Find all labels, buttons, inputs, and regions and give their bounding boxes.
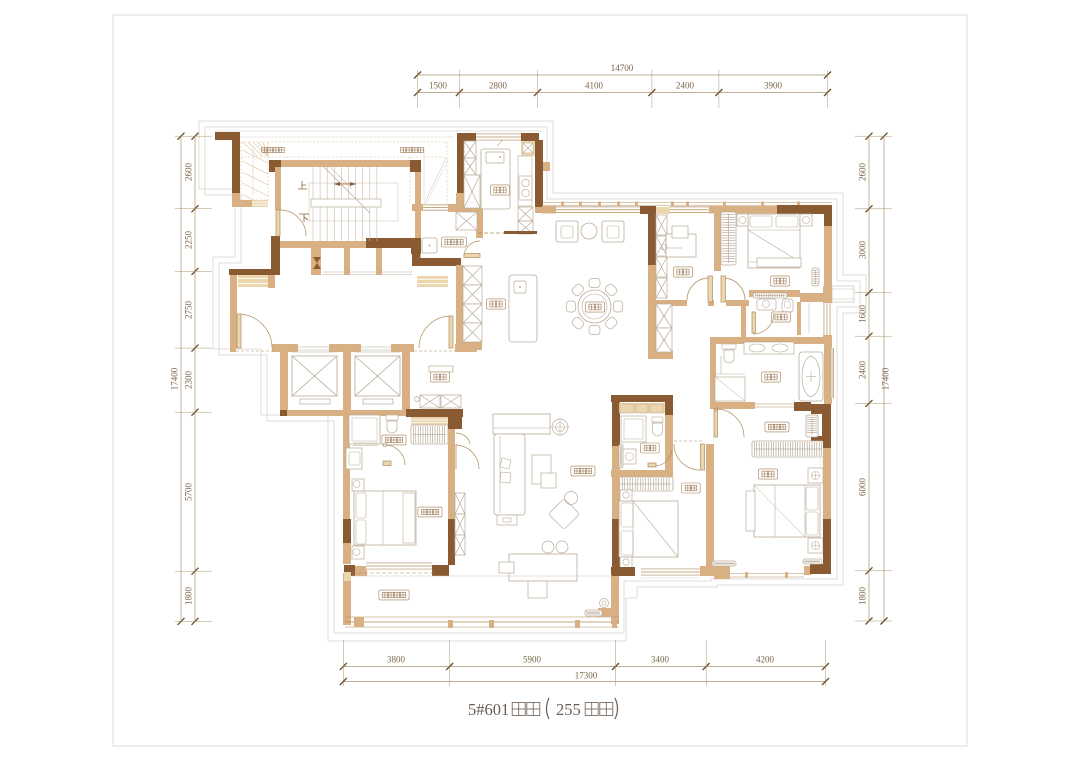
svg-text:255: 255 <box>556 700 581 719</box>
svg-text:5700: 5700 <box>184 483 194 502</box>
svg-text:17300: 17300 <box>575 671 598 681</box>
svg-text:3400: 3400 <box>651 655 670 665</box>
svg-text:17400: 17400 <box>170 367 180 390</box>
svg-text:5900: 5900 <box>523 655 542 665</box>
svg-text:4100: 4100 <box>585 81 604 91</box>
svg-text:4200: 4200 <box>756 655 775 665</box>
svg-text:2800: 2800 <box>489 81 508 91</box>
svg-text:2250: 2250 <box>184 231 194 250</box>
svg-text:2400: 2400 <box>858 361 868 380</box>
svg-text:3000: 3000 <box>858 241 868 260</box>
svg-text:2600: 2600 <box>858 163 868 182</box>
svg-text:2300: 2300 <box>184 371 194 390</box>
svg-text:3900: 3900 <box>764 81 783 91</box>
svg-text:1600: 1600 <box>858 305 868 324</box>
svg-text:1800: 1800 <box>184 587 194 606</box>
svg-text:1800: 1800 <box>858 587 868 606</box>
svg-text:2750: 2750 <box>184 301 194 320</box>
svg-text:5#601: 5#601 <box>468 700 509 719</box>
svg-text:1500: 1500 <box>429 81 448 91</box>
svg-text:2400: 2400 <box>676 81 695 91</box>
svg-text:14700: 14700 <box>611 63 634 73</box>
svg-text:17400: 17400 <box>881 367 891 390</box>
svg-text:3800: 3800 <box>387 655 406 665</box>
svg-text:2600: 2600 <box>184 163 194 182</box>
svg-text:6000: 6000 <box>858 478 868 497</box>
